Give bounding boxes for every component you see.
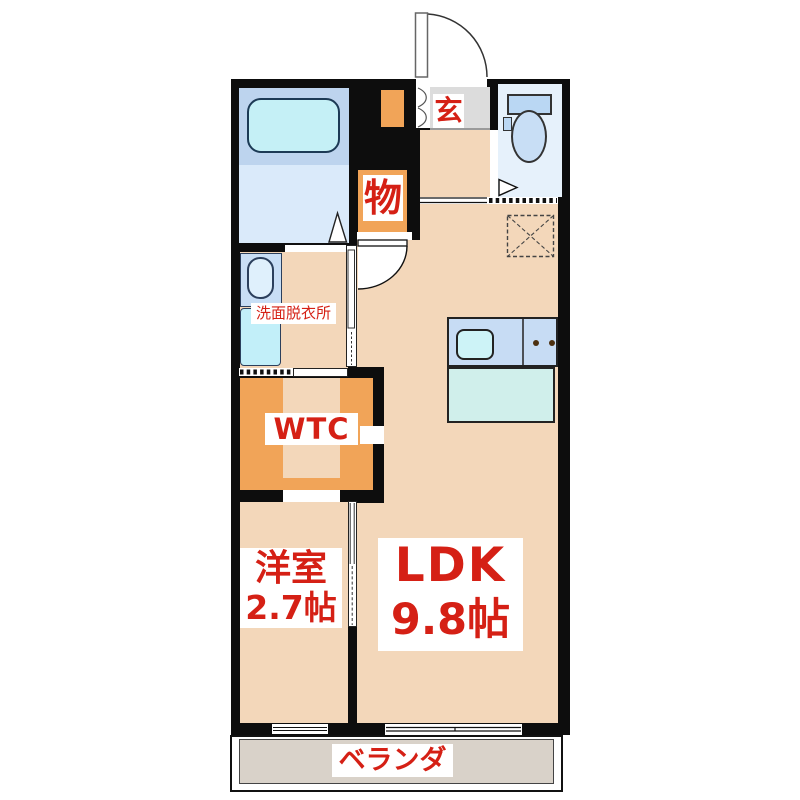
ldk-floor [420, 204, 558, 240]
shoe-cabinet-icon [381, 90, 404, 127]
bedroom-name: 洋室 [240, 548, 342, 590]
bathtub-icon [247, 98, 340, 153]
wtc-door-opening-right [360, 426, 384, 444]
kitchen-counter-table [447, 367, 555, 423]
toilet-door-opening [490, 130, 498, 197]
wtc-label: WTC [265, 413, 358, 445]
storage-label: 物 [363, 175, 403, 221]
floor-plan: 洗面脱衣所 WTC 洋室 2.7帖 玄 物 LDK 9.8帖 [0, 0, 800, 800]
entrance-step-edge [420, 197, 487, 204]
ldk-size: 9.8帖 [378, 594, 523, 646]
toilet-bowl-icon [511, 110, 547, 163]
bedroom-window [272, 724, 328, 734]
entrance-label: 玄 [433, 94, 464, 128]
wtc-door-opening-bottom [283, 490, 340, 502]
kitchen-sink-icon [456, 329, 494, 360]
entrance-door-frame [416, 85, 430, 128]
ldk-label: LDK 9.8帖 [378, 538, 523, 651]
bedroom-size: 2.7帖 [240, 590, 342, 626]
washroom-label: 洗面脱衣所 [251, 303, 336, 324]
bathroom-floor-lower [239, 165, 349, 243]
toilet-dashed-boundary [487, 197, 558, 204]
veranda-label: ベランダ [332, 744, 453, 777]
vanity-sink-icon [247, 257, 274, 299]
ldk-window [385, 724, 522, 735]
entrance-hall-floor [420, 130, 490, 198]
storage-door-threshold [357, 232, 412, 240]
bedroom-label: 洋室 2.7帖 [240, 548, 342, 628]
ldk-name: LDK [378, 538, 523, 594]
bedroom-sliding-door [348, 501, 357, 627]
washroom-dashed-boundary [239, 368, 293, 376]
wtc-closet-bottom [240, 478, 373, 490]
washroom-sliding-door-right [346, 245, 357, 367]
washroom-sliding-door-bottom [293, 368, 348, 377]
